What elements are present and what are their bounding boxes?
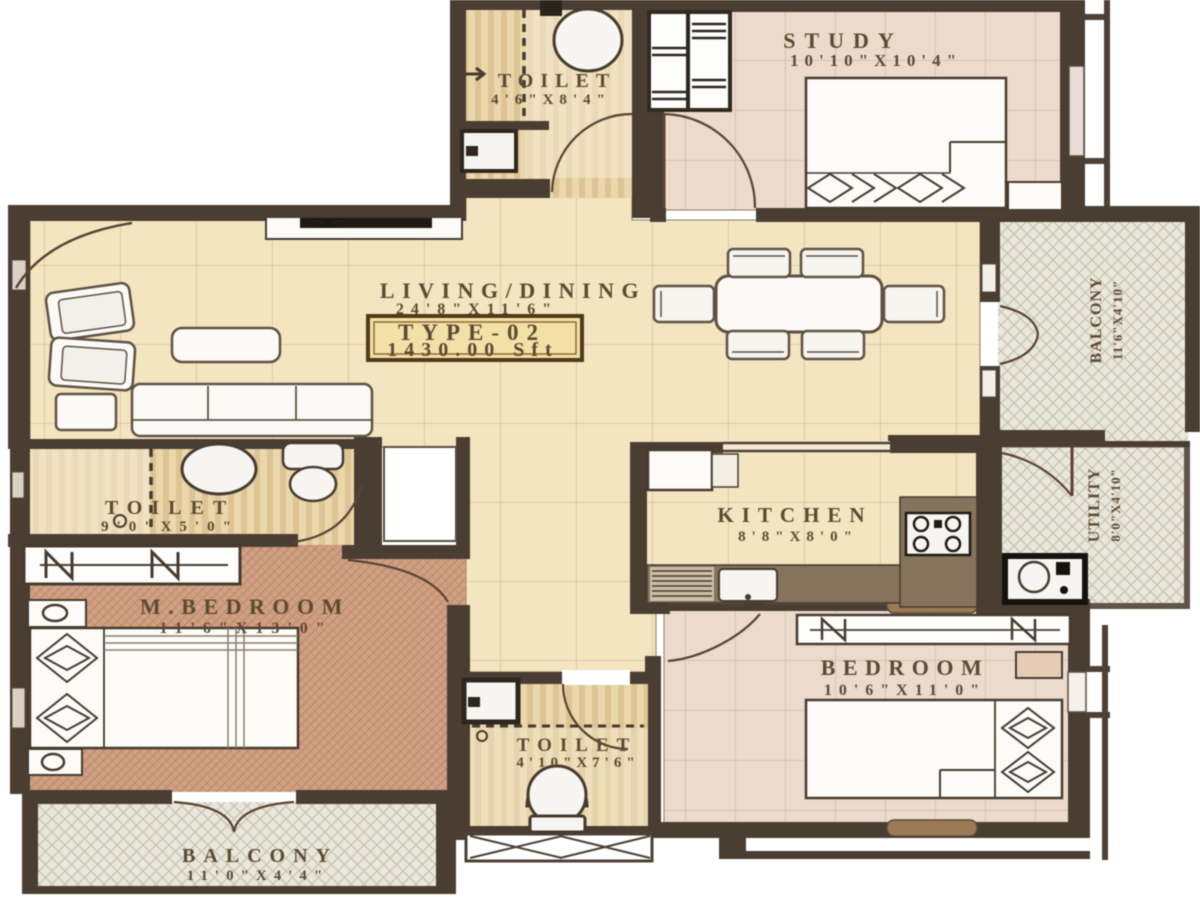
svg-text:10'10"X10'4": 10'10"X10'4" — [790, 51, 962, 70]
svg-text:8'8"X8'0": 8'8"X8'0" — [738, 529, 858, 545]
svg-text:8'0"X4'10": 8'0"X4'10" — [1108, 468, 1123, 542]
svg-text:1430.00 Sft: 1430.00 Sft — [387, 339, 558, 361]
svg-text:KITCHEN: KITCHEN — [717, 503, 872, 527]
svg-text:10'6"X11'0": 10'6"X11'0" — [824, 682, 986, 699]
svg-text:11'6"X4'10": 11'6"X4'10" — [1110, 280, 1125, 360]
svg-text:TOILET: TOILET — [517, 735, 638, 756]
svg-text:LIVING/DINING: LIVING/DINING — [380, 278, 646, 303]
svg-text:4'10"X7'6": 4'10"X7'6" — [516, 755, 639, 771]
svg-text:BALCONY: BALCONY — [1088, 276, 1105, 363]
svg-text:11'0"X4'4": 11'0"X4'4" — [187, 868, 330, 884]
svg-text:TOILET: TOILET — [498, 70, 616, 92]
svg-text:UTILITY: UTILITY — [1086, 468, 1103, 543]
svg-text:BALCONY: BALCONY — [182, 845, 338, 867]
svg-text:11'6"X13'0": 11'6"X13'0" — [159, 620, 332, 637]
svg-text:4'6"X8'4": 4'6"X8'4" — [491, 92, 611, 108]
svg-text:BEDROOM: BEDROOM — [821, 655, 990, 680]
svg-text:24'8"X11'6": 24'8"X11'6" — [396, 301, 558, 318]
svg-text:TOILET: TOILET — [105, 497, 235, 519]
svg-text:STUDY: STUDY — [783, 28, 903, 53]
svg-text:9'0"X5'0": 9'0"X5'0" — [101, 519, 239, 535]
svg-text:M.BEDROOM: M.BEDROOM — [140, 594, 350, 619]
